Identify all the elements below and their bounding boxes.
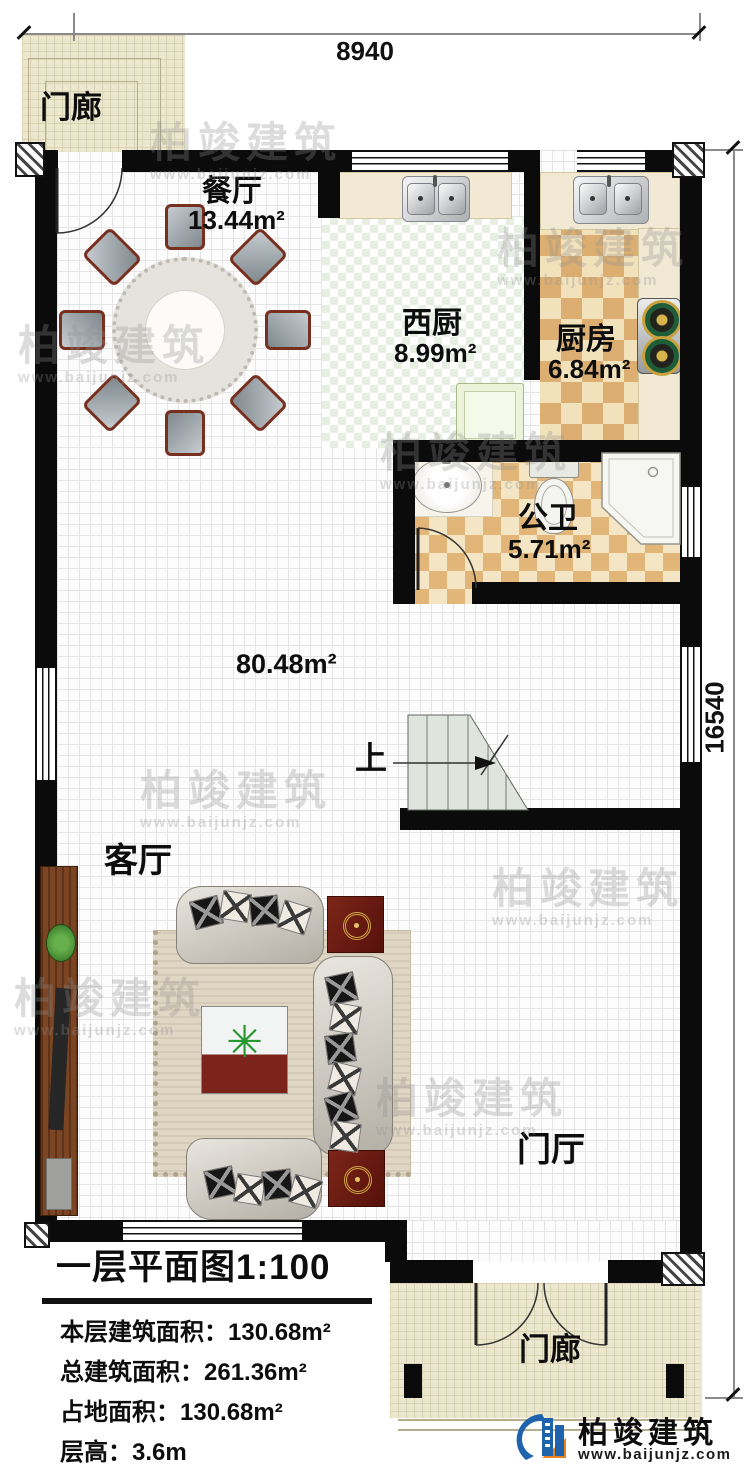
room-area-kitchen: 6.84m² bbox=[548, 356, 630, 383]
window bbox=[123, 1220, 302, 1242]
dimension-width: 8940 bbox=[310, 36, 420, 67]
column-hatch bbox=[661, 1252, 705, 1286]
column-hatch bbox=[672, 142, 705, 178]
room-label-west-kitchen: 西厨 bbox=[402, 308, 462, 340]
dimension-line-top bbox=[24, 33, 701, 35]
fridge bbox=[456, 383, 524, 447]
dining-chair bbox=[265, 310, 311, 350]
stairs-up-label: 上 bbox=[355, 742, 387, 776]
room-label-kitchen: 厨房 bbox=[556, 324, 616, 356]
dimension-line-right bbox=[733, 150, 735, 1398]
logo-icon bbox=[516, 1408, 572, 1470]
title-rule bbox=[42, 1298, 372, 1304]
dining-chair bbox=[165, 410, 205, 456]
side-table bbox=[327, 896, 384, 953]
cabinet-decor bbox=[46, 1158, 72, 1210]
brand-logo: 柏竣建筑 www.baijunjz.com bbox=[516, 1406, 750, 1474]
plant-icon: ✳ bbox=[202, 1021, 287, 1065]
dining-table-top bbox=[145, 290, 225, 370]
column-hatch bbox=[15, 142, 45, 177]
window bbox=[352, 150, 508, 172]
room-label-porch-top: 门廊 bbox=[40, 92, 102, 125]
room-area-west-kitchen: 8.99m² bbox=[394, 340, 476, 367]
footprint-line: 占地面积：130.68m² bbox=[60, 1392, 283, 1427]
room-label-foyer: 门厅 bbox=[517, 1133, 585, 1169]
foyer-floor bbox=[390, 1220, 680, 1262]
porch-column bbox=[666, 1364, 684, 1398]
window bbox=[680, 487, 702, 557]
room-area-dining: 13.44m² bbox=[188, 207, 285, 234]
room-area-open: 80.48m² bbox=[236, 650, 337, 678]
bath-sink bbox=[412, 458, 482, 513]
dining-chair bbox=[59, 310, 105, 350]
floor-area-line: 本层建筑面积：130.68m² bbox=[60, 1312, 331, 1347]
total-area-line: 总建筑面积：261.36m² bbox=[60, 1352, 307, 1387]
room-label-living: 客厅 bbox=[104, 844, 172, 880]
room-label-porch-bottom: 门廊 bbox=[519, 1334, 581, 1367]
logo-website: www.baijunjz.com bbox=[578, 1446, 731, 1463]
room-label-bathroom: 公卫 bbox=[518, 503, 578, 535]
dimension-height: 16540 bbox=[700, 648, 731, 788]
porch-column bbox=[404, 1364, 422, 1398]
side-table bbox=[328, 1150, 385, 1207]
column-hatch bbox=[24, 1222, 50, 1248]
plan-title: 一层平面图1:100 bbox=[56, 1250, 331, 1287]
kitchen-sink bbox=[573, 176, 649, 224]
room-label-dining: 餐厅 bbox=[202, 176, 262, 208]
floor-height-line: 层高：3.6m bbox=[60, 1432, 187, 1467]
plant-icon bbox=[46, 924, 76, 962]
floor-plan: ✳ bbox=[0, 0, 750, 1481]
west-kitchen-sink bbox=[402, 176, 470, 222]
stove-icon bbox=[637, 298, 681, 374]
window bbox=[577, 150, 645, 172]
coffee-table: ✳ bbox=[201, 1006, 288, 1094]
window bbox=[35, 668, 57, 780]
room-area-bathroom: 5.71m² bbox=[508, 536, 590, 563]
